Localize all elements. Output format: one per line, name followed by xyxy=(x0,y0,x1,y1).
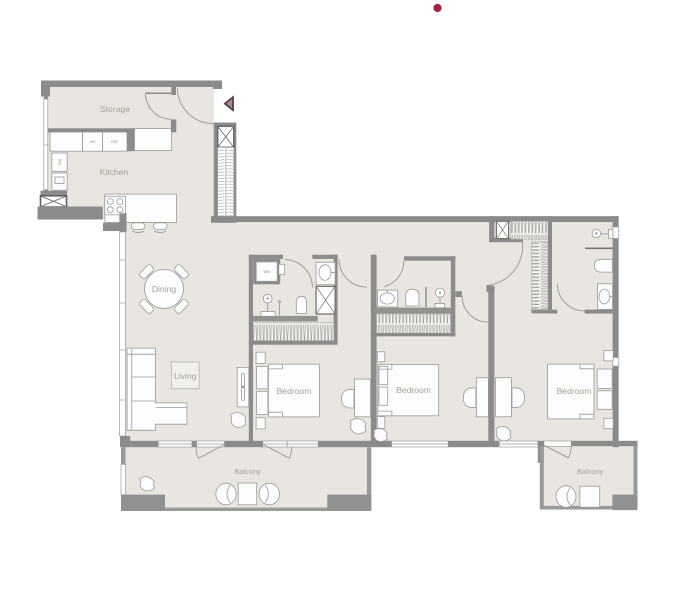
svg-text:DW: DW xyxy=(58,158,62,165)
svg-text:Bedroom: Bedroom xyxy=(557,386,592,396)
svg-text:Dining: Dining xyxy=(152,284,177,294)
svg-text:REF: REF xyxy=(111,140,119,144)
svg-text:Living: Living xyxy=(174,371,197,381)
svg-text:Balcony: Balcony xyxy=(577,467,604,476)
svg-text:Balcony: Balcony xyxy=(234,467,261,476)
svg-text:Bedroom: Bedroom xyxy=(396,385,431,395)
svg-text:WM: WM xyxy=(264,270,270,274)
svg-text:Kitchen: Kitchen xyxy=(100,167,129,177)
svg-text:Bedroom: Bedroom xyxy=(277,386,312,396)
svg-text:Storage: Storage xyxy=(100,104,130,114)
svg-text:WD: WD xyxy=(90,140,96,144)
